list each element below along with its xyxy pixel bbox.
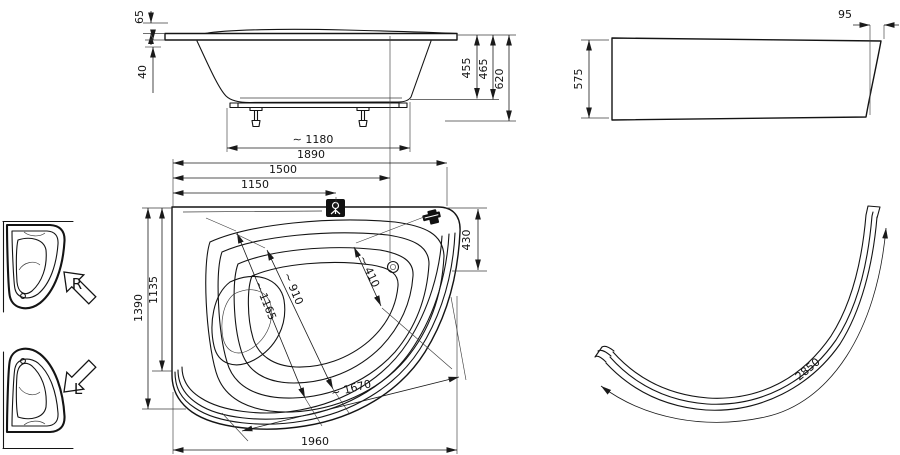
apron-band-1 bbox=[613, 215, 866, 398]
overflow-fitting-icon bbox=[421, 208, 442, 226]
dim-label-1390: 1390 bbox=[132, 294, 145, 322]
dim-label-40: 40 bbox=[136, 65, 149, 79]
dim-label-1150: 1150 bbox=[241, 178, 269, 191]
dim-rim-drop: 40 bbox=[136, 30, 165, 93]
dim-label-575: 575 bbox=[572, 69, 585, 90]
dim-label-430: 430 bbox=[460, 230, 473, 251]
inner-ledge bbox=[218, 233, 429, 398]
mini-tub-right bbox=[7, 225, 65, 308]
dim-label-1180: ∼ 1180 bbox=[293, 133, 334, 146]
dim-heights: 455 465 620 bbox=[410, 35, 516, 121]
orientation-left: L bbox=[3, 349, 96, 449]
drawing-canvas: 65 40 455 465 620 ∼ 1180 bbox=[0, 0, 900, 455]
dim-label-1960: 1960 bbox=[301, 435, 329, 448]
drain-icon bbox=[388, 262, 399, 273]
deck-opening bbox=[206, 220, 444, 412]
dim-label-1135: 1135 bbox=[147, 276, 160, 304]
apron-end-cap-left bbox=[595, 346, 614, 362]
front-panel-outline bbox=[612, 38, 881, 120]
adjustable-foot-left bbox=[250, 108, 262, 127]
dim-panel-curve-depth: 95 bbox=[838, 8, 899, 115]
bathtub-technical-drawing: 65 40 455 465 620 ∼ 1180 bbox=[0, 0, 900, 455]
apron-band-2 bbox=[610, 216, 872, 404]
rim-band-3 bbox=[182, 236, 442, 413]
dim-panel-height: 575 bbox=[572, 40, 609, 118]
dim-label-1670: ∼ 1670 bbox=[330, 377, 373, 399]
dim-label-1165: ∼ 1165 bbox=[252, 279, 279, 322]
apron-band-3 bbox=[606, 217, 877, 410]
rim-profile bbox=[165, 34, 457, 41]
dim-label-620: 620 bbox=[493, 69, 506, 90]
front-panel-side-view: 575 95 bbox=[572, 8, 899, 120]
dim-label-465: 465 bbox=[477, 59, 490, 80]
basin-rim bbox=[234, 248, 413, 383]
apron-arc-dimension bbox=[601, 228, 886, 422]
dim-label-410: ∼ 410 bbox=[356, 253, 382, 289]
orientation-legend: R L bbox=[3, 222, 96, 449]
dim-plan-right: 430 bbox=[445, 208, 487, 271]
faucet-mount-icon bbox=[326, 199, 345, 217]
apron-end-cap-right bbox=[866, 206, 880, 218]
dim-label-455: 455 bbox=[460, 58, 473, 79]
dim-label-65: 65 bbox=[133, 10, 146, 24]
orientation-right: R bbox=[3, 222, 96, 313]
dim-plan-left: 1135 1390 bbox=[132, 208, 186, 409]
dim-plan-bottom: 1960 bbox=[173, 296, 457, 454]
adjustable-foot-right bbox=[357, 108, 369, 127]
apron-panel-plan-view: 2850 bbox=[595, 206, 886, 422]
tub-shell bbox=[197, 41, 431, 103]
label-left: L bbox=[74, 380, 83, 398]
dim-plan-top: 1890 1500 1150 bbox=[173, 36, 447, 261]
bathtub-side-view: 65 40 455 465 620 ∼ 1180 bbox=[133, 10, 516, 152]
dim-label-1500: 1500 bbox=[269, 163, 297, 176]
dim-label-1890: 1890 bbox=[297, 148, 325, 161]
label-right: R bbox=[72, 275, 82, 293]
bathtub-plan-view: 1890 1500 1150 1135 1390 430 ∼ 1165 bbox=[132, 36, 487, 454]
dim-label-95: 95 bbox=[838, 8, 852, 21]
base-frame bbox=[230, 103, 407, 108]
